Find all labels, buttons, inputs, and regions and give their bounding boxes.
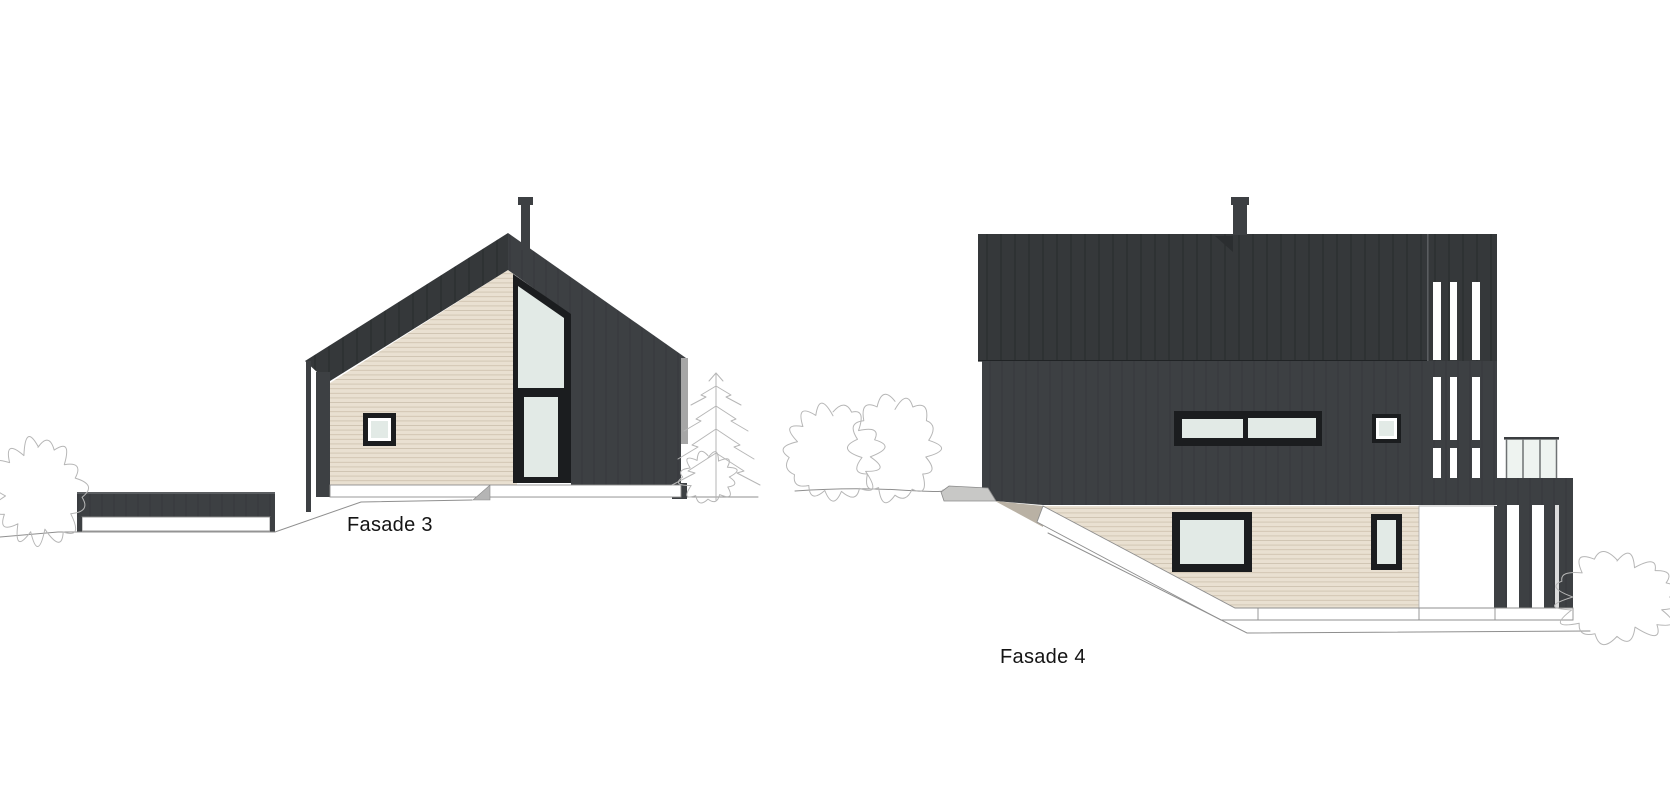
fasade3-label: Fasade 3	[347, 514, 433, 537]
chimney-cap	[1231, 197, 1249, 205]
bush-sketch-far-left	[0, 437, 89, 547]
drawing-sheet: Fasade 3 Fasade 4	[0, 0, 1670, 800]
bush-sketch-left-a	[783, 403, 885, 501]
carport-post-left	[77, 517, 82, 532]
roof-band-texture	[978, 234, 1497, 361]
fasade4-label: Fasade 4	[1000, 646, 1086, 669]
chimney	[521, 204, 530, 250]
carport-cladding-texture	[77, 492, 275, 517]
recess-corner-edge	[1494, 506, 1497, 608]
stone-step	[941, 486, 996, 501]
tall-window-lower-pane	[524, 397, 558, 477]
carport-top-edge	[77, 492, 275, 494]
carport-base	[82, 517, 270, 531]
slat-gap-2	[1532, 505, 1544, 608]
chimney	[1233, 204, 1247, 235]
small-upper-window-glass	[1379, 421, 1394, 436]
carport-post-right	[270, 517, 275, 532]
small-window-glass	[371, 421, 388, 438]
slat-gap-1	[1507, 505, 1519, 608]
basement-window-large	[1172, 512, 1252, 572]
strip-window-pane-right	[1248, 418, 1316, 438]
fasade3-elevation	[0, 197, 760, 547]
basement-window-large-glass	[1180, 520, 1244, 564]
small-upper-window	[1372, 414, 1401, 443]
slat-screen	[1433, 282, 1480, 478]
small-square-window	[363, 413, 396, 446]
strip-window	[1174, 411, 1322, 446]
roof-edge-line	[1427, 234, 1429, 361]
fasade4-elevation	[783, 197, 1670, 645]
balcony-glass-railing	[1506, 439, 1557, 478]
carport-structure	[77, 492, 275, 532]
bush-sketch-left-b	[847, 394, 941, 502]
strip-window-pane-left	[1182, 419, 1243, 438]
bargeboard-left	[306, 361, 311, 512]
corner-post-left	[316, 372, 330, 497]
balcony	[1497, 437, 1573, 505]
basement-window-narrow	[1371, 514, 1402, 570]
elevation-drawing-canvas	[0, 0, 1670, 800]
balcony-handrail	[1504, 437, 1559, 440]
foundation-strip	[330, 485, 681, 497]
recessed-entry-wall	[1419, 506, 1495, 608]
slope-wedge	[995, 501, 1043, 527]
chimney-cap	[518, 197, 533, 205]
house-fasade3	[305, 197, 688, 512]
slat-gap-3	[1555, 505, 1559, 608]
basement-window-narrow-glass	[1377, 520, 1396, 564]
